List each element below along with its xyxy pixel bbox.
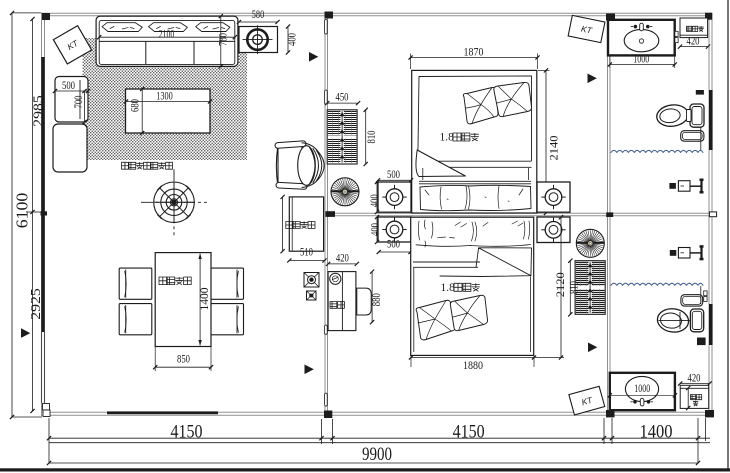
svg-text:420: 420 <box>687 35 700 47</box>
svg-text:6100: 6100 <box>13 193 32 229</box>
svg-text:850: 850 <box>177 354 190 366</box>
svg-text:500: 500 <box>387 239 400 251</box>
svg-text:810: 810 <box>569 281 581 294</box>
svg-text:580: 580 <box>252 9 265 21</box>
svg-text:780: 780 <box>218 33 230 46</box>
svg-text:9900: 9900 <box>362 444 392 465</box>
svg-text:1000: 1000 <box>634 383 650 395</box>
svg-text:4150: 4150 <box>453 421 485 442</box>
svg-text:1870: 1870 <box>464 46 484 58</box>
svg-text:400: 400 <box>370 223 382 236</box>
svg-text:2100: 2100 <box>159 28 175 40</box>
svg-text:1400: 1400 <box>199 287 211 310</box>
svg-text:400: 400 <box>287 33 299 46</box>
svg-text:880: 880 <box>371 293 383 306</box>
svg-text:510: 510 <box>300 247 313 259</box>
svg-text:700: 700 <box>73 95 85 108</box>
svg-text:2925: 2925 <box>29 288 44 320</box>
svg-text:450: 450 <box>336 91 349 103</box>
svg-text:1300: 1300 <box>156 90 173 102</box>
svg-text:4150: 4150 <box>171 421 203 442</box>
svg-text:2120: 2120 <box>555 272 567 297</box>
svg-text:810: 810 <box>366 130 378 143</box>
svg-text:400: 400 <box>369 194 381 207</box>
svg-text:1.8: 1.8 <box>441 282 456 294</box>
svg-text:2985: 2985 <box>31 95 46 127</box>
svg-text:420: 420 <box>336 252 349 264</box>
svg-text:1.8: 1.8 <box>440 132 455 144</box>
svg-text:2140: 2140 <box>549 135 561 160</box>
svg-text:420: 420 <box>688 372 701 384</box>
svg-text:1000: 1000 <box>633 54 649 66</box>
svg-text:500: 500 <box>387 169 400 181</box>
svg-text:1880: 1880 <box>463 360 483 372</box>
svg-text:1400: 1400 <box>640 421 673 442</box>
svg-text:680: 680 <box>130 99 142 112</box>
svg-text:500: 500 <box>62 80 75 92</box>
